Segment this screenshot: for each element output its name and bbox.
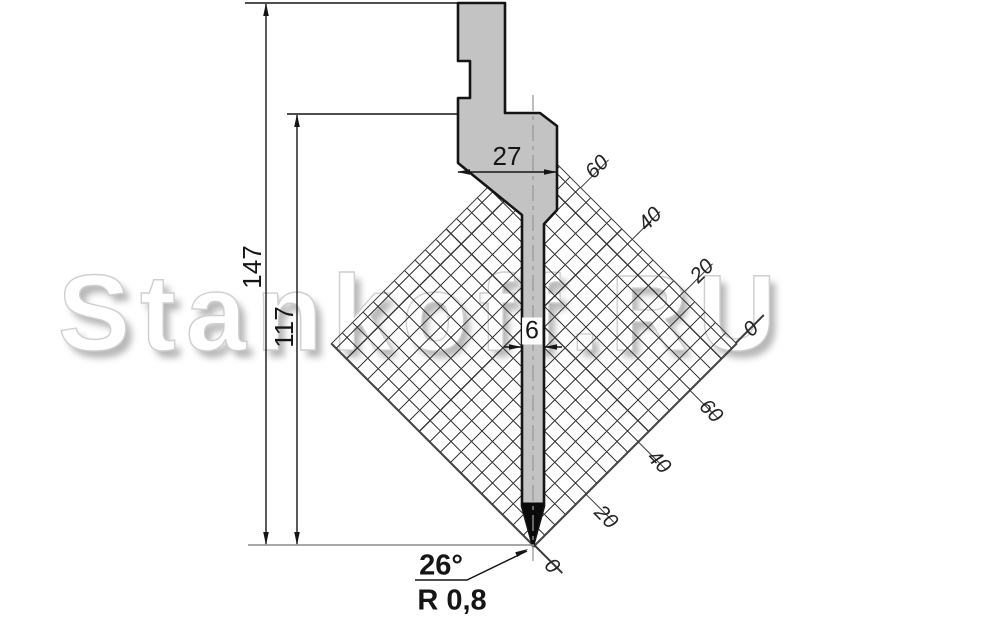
arrow-6-left: [509, 344, 522, 350]
technical-drawing-canvas: Stankoff.RU Stankoff.RU: [0, 0, 1000, 618]
label-tip-angle: 26°: [419, 552, 463, 581]
arrow-147-top: [263, 3, 269, 16]
arrow-117-bottom: [294, 532, 300, 545]
punch-outline: [458, 3, 557, 546]
arrow-117-top: [294, 114, 300, 127]
arrow-6-right: [544, 344, 557, 350]
label-blade-width: 6: [522, 318, 542, 345]
punch-profile-drawing: [0, 0, 1000, 618]
label-working-height: 117: [271, 306, 297, 347]
label-body-width: 27: [493, 143, 522, 169]
arrow-147-bottom: [263, 532, 269, 545]
label-tip-radius: R 0,8: [417, 587, 486, 616]
arrow-angle-leader: [515, 549, 528, 557]
arrow-27-left: [457, 169, 470, 175]
label-total-height: 147: [239, 245, 265, 288]
